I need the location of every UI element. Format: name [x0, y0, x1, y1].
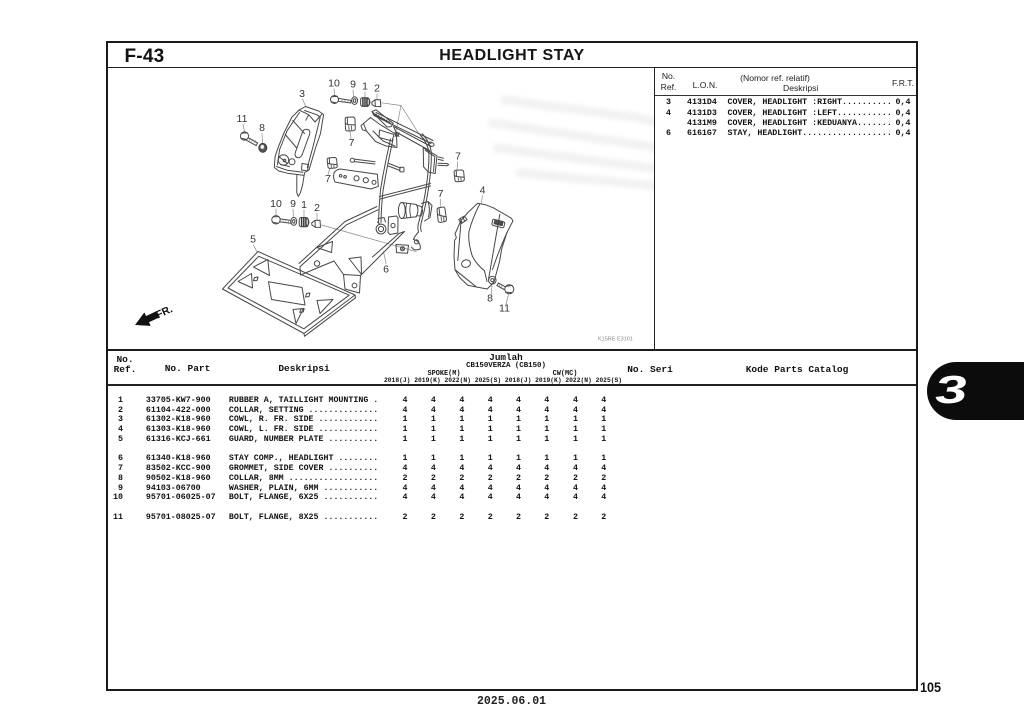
svg-text:2: 2 [374, 83, 380, 95]
svg-text:7: 7 [438, 188, 444, 200]
svg-text:10: 10 [270, 198, 282, 210]
svg-text:FR.: FR. [154, 303, 174, 321]
svg-text:6: 6 [383, 264, 389, 276]
svg-text:K15RE E3101: K15RE E3101 [598, 337, 633, 343]
svg-text:8: 8 [259, 122, 265, 134]
svg-text:2: 2 [314, 202, 320, 214]
svg-text:7: 7 [455, 151, 461, 163]
svg-text:1: 1 [362, 81, 368, 93]
svg-text:8: 8 [487, 293, 493, 305]
svg-text:5: 5 [250, 234, 256, 246]
svg-text:9: 9 [290, 198, 296, 210]
svg-text:10: 10 [328, 78, 340, 90]
svg-text:11: 11 [237, 113, 248, 125]
svg-text:7: 7 [349, 137, 355, 149]
svg-text:1: 1 [301, 199, 307, 211]
svg-text:3: 3 [299, 88, 305, 100]
svg-text:9: 9 [350, 79, 356, 91]
svg-text:11: 11 [499, 303, 510, 315]
svg-text:4: 4 [480, 185, 486, 197]
